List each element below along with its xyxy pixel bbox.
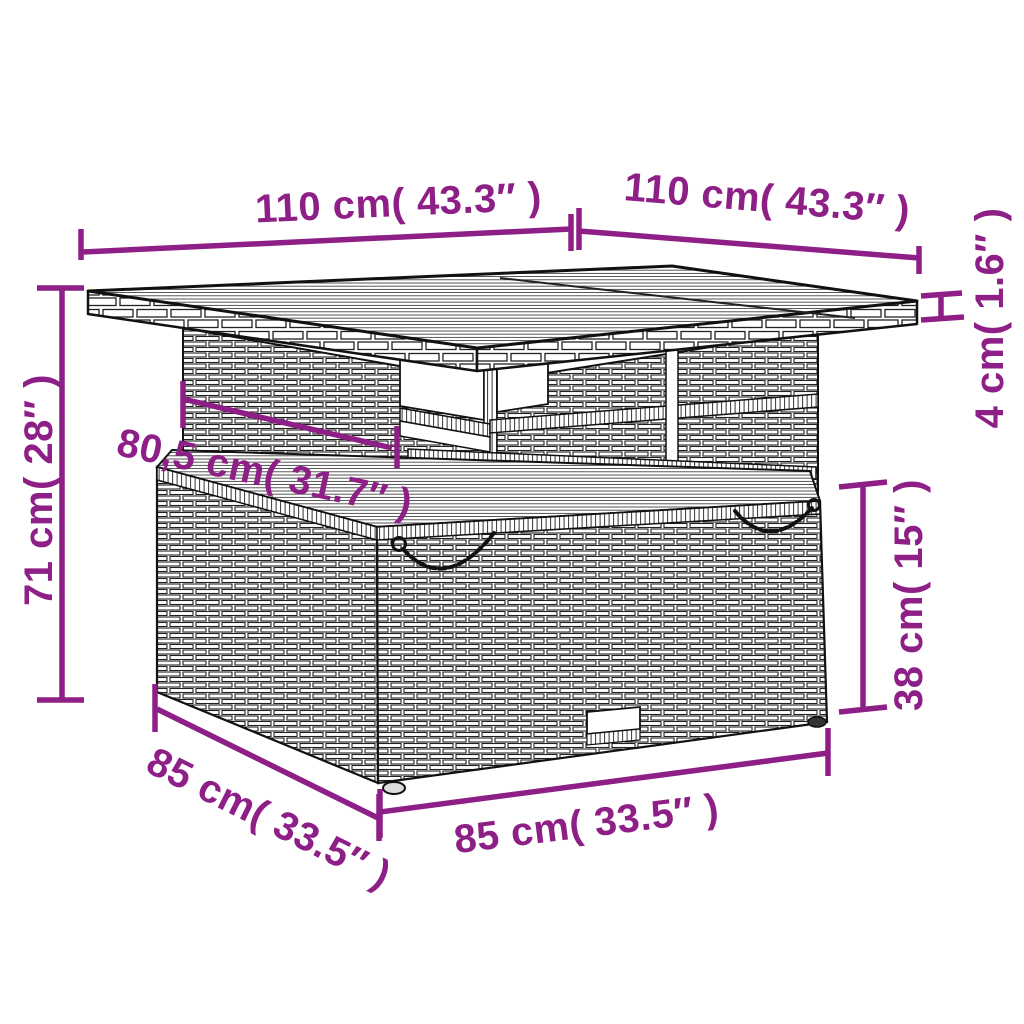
dim-tick [839,707,887,712]
dim-line [579,231,919,258]
dim-label-tabletop-thickness: 4 cm( 1.6″ ) [968,208,1012,429]
pedestal-support-post [666,339,678,475]
dim-label-tabletop-depth: 110 cm( 43.3″ ) [622,165,912,233]
base-foot-right [808,717,826,727]
storage-base-box [157,450,827,794]
dim-label-tabletop-width: 110 cm( 43.3″ ) [254,175,543,232]
diagram-canvas: 110 cm( 43.3″ ) 110 cm( 43.3″ ) 4 cm( 1.… [0,0,1024,1024]
dim-tabletop-depth: 110 cm( 43.3″ ) [579,165,919,274]
dim-overall-height: 71 cm( 28″ ) [17,288,84,700]
dim-tabletop-width: 110 cm( 43.3″ ) [81,175,571,260]
dim-label-overall-height: 71 cm( 28″ ) [17,374,61,606]
dim-line [83,229,571,252]
dim-tabletop-thickness: 4 cm( 1.6″ ) [921,208,1012,429]
dim-base-height: 38 cm( 15″ ) [839,479,931,712]
dim-tick [839,482,887,487]
base-foot-left [383,782,405,794]
product-dimension-diagram: 110 cm( 43.3″ ) 110 cm( 43.3″ ) 4 cm( 1.… [0,0,1024,1024]
dim-label-base-height: 38 cm( 15″ ) [887,479,931,711]
table-drawing [88,266,917,794]
